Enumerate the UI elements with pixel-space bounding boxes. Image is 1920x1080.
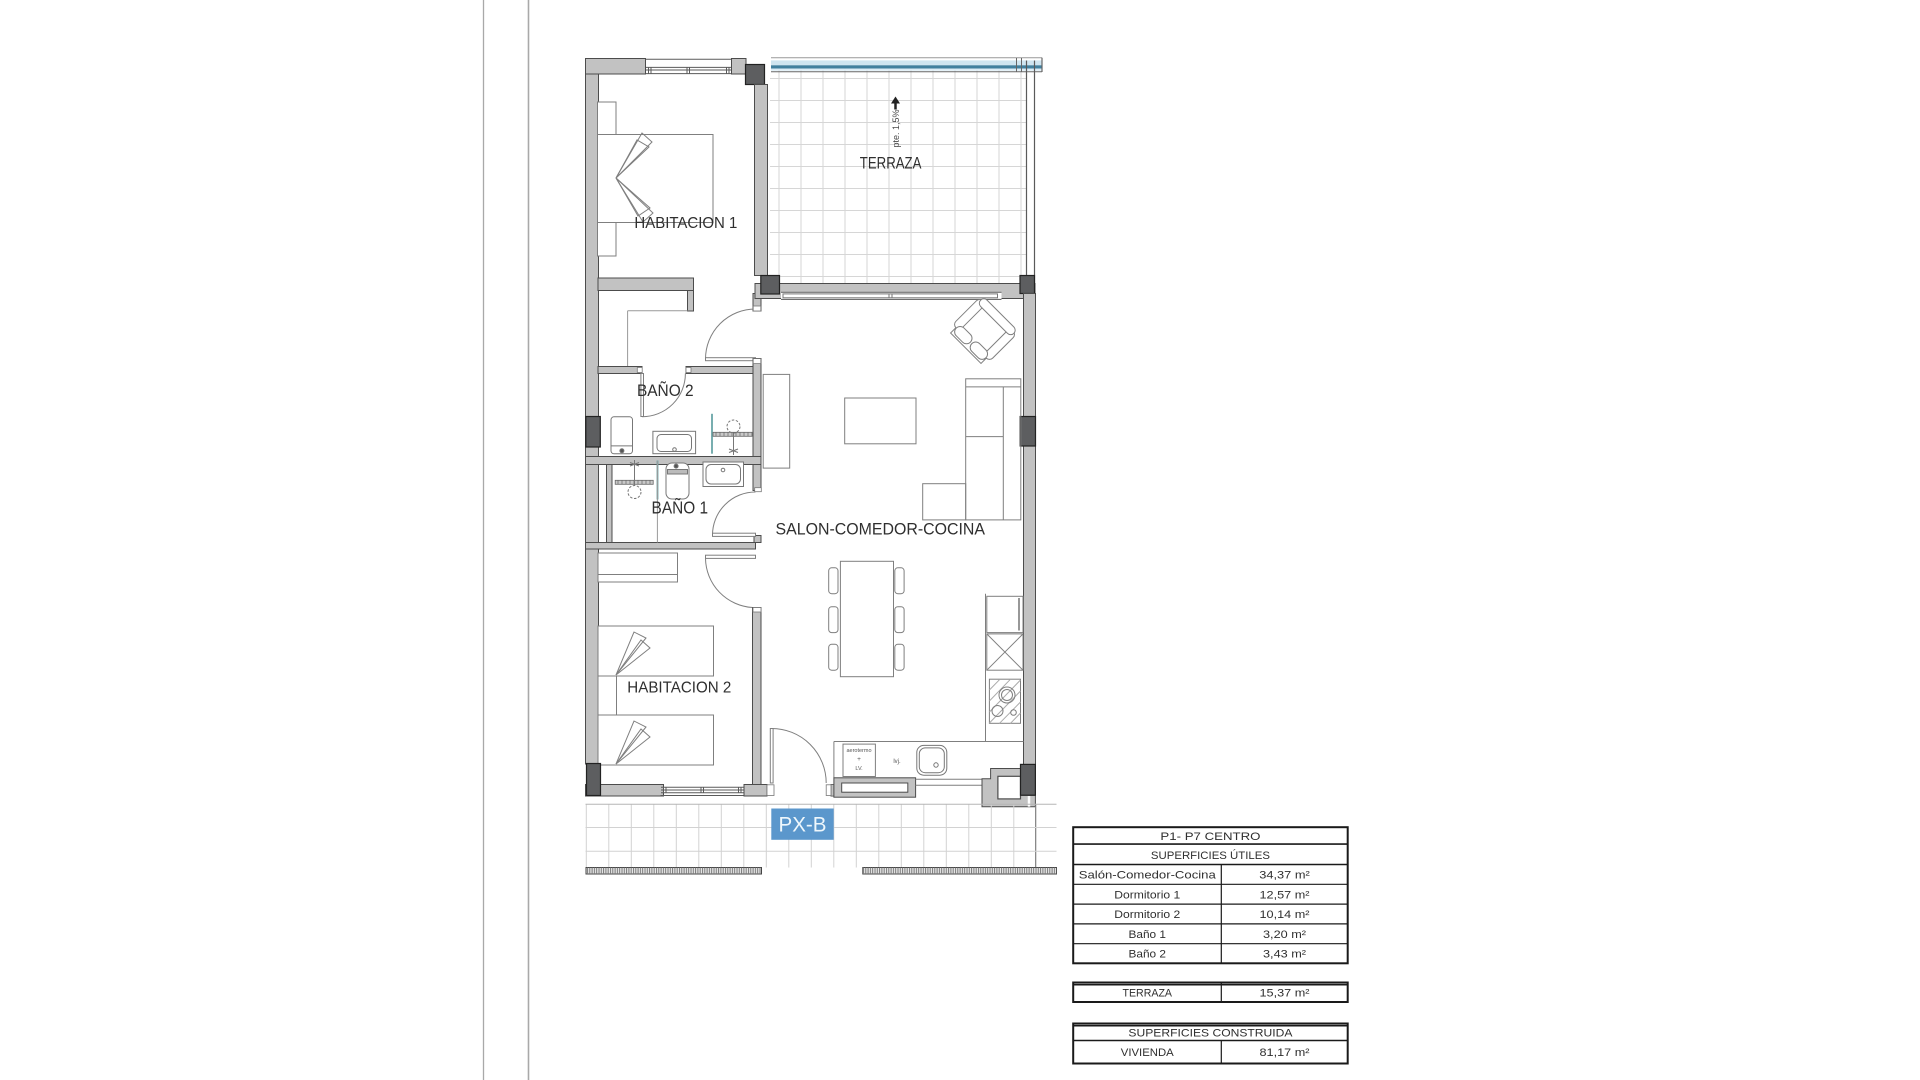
svg-text:BAÑO 2: BAÑO 2 bbox=[637, 381, 694, 400]
svg-text:+: + bbox=[857, 756, 861, 763]
svg-text:3,20 m²: 3,20 m² bbox=[1263, 929, 1306, 941]
svg-text:3,43 m²: 3,43 m² bbox=[1263, 949, 1306, 961]
svg-text:Baño 2: Baño 2 bbox=[1129, 949, 1167, 961]
svg-text:HABITACION 1: HABITACION 1 bbox=[634, 215, 737, 232]
svg-text:aerotermo: aerotermo bbox=[846, 748, 871, 754]
svg-text:12,57 m²: 12,57 m² bbox=[1260, 889, 1310, 901]
svg-text:lvj.: lvj. bbox=[893, 759, 901, 765]
svg-text:VIVIENDA: VIVIENDA bbox=[1121, 1047, 1175, 1059]
svg-text:15,37 m²: 15,37 m² bbox=[1260, 987, 1310, 999]
svg-text:SUPERFICIES CONSTRUIDA: SUPERFICIES CONSTRUIDA bbox=[1128, 1027, 1293, 1039]
svg-text:LV.: LV. bbox=[855, 766, 863, 772]
svg-text:Dormitorio 1: Dormitorio 1 bbox=[1114, 889, 1180, 901]
svg-text:SALON-COMEDOR-COCINA: SALON-COMEDOR-COCINA bbox=[776, 519, 986, 538]
svg-text:pte. 1,5%: pte. 1,5% bbox=[891, 109, 901, 147]
svg-text:TERRAZA: TERRAZA bbox=[860, 154, 922, 173]
svg-text:P1- P7 CENTRO: P1- P7 CENTRO bbox=[1160, 831, 1260, 843]
svg-text:10,14 m²: 10,14 m² bbox=[1260, 909, 1310, 921]
svg-text:Baño 1: Baño 1 bbox=[1129, 929, 1167, 941]
svg-text:HABITACION 2: HABITACION 2 bbox=[627, 680, 731, 697]
svg-text:TERRAZA: TERRAZA bbox=[1123, 987, 1173, 999]
svg-text:Dormitorio 2: Dormitorio 2 bbox=[1114, 909, 1180, 921]
svg-text:PX-B: PX-B bbox=[779, 814, 827, 837]
svg-text:34,37 m²: 34,37 m² bbox=[1259, 870, 1310, 882]
svg-text:SUPERFICIES ÚTILES: SUPERFICIES ÚTILES bbox=[1151, 849, 1270, 862]
svg-text:Salón-Comedor-Cocina: Salón-Comedor-Cocina bbox=[1079, 870, 1217, 882]
svg-text:81,17 m²: 81,17 m² bbox=[1260, 1047, 1310, 1059]
svg-text:BAÑO 1: BAÑO 1 bbox=[652, 497, 709, 518]
